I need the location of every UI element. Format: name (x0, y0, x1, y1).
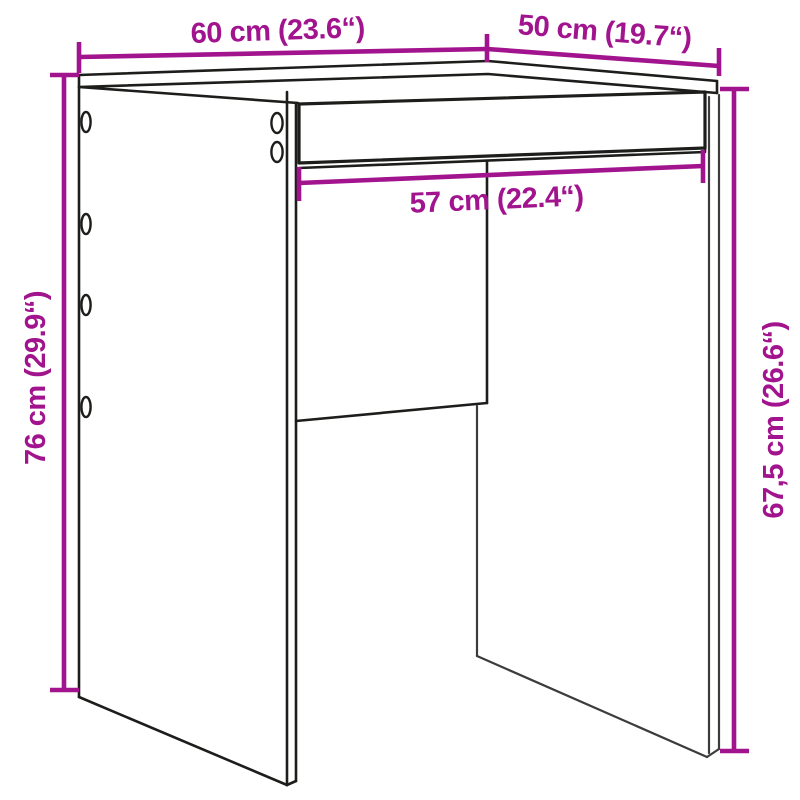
dimension-label-total-height: 76 cm (29.9“) (20, 291, 52, 465)
dimension-top-depth: 50 cm (19.7“) (487, 9, 719, 76)
dimension-line (299, 166, 703, 183)
screw-hole (271, 142, 282, 162)
tabletop-left-end-edge (79, 87, 298, 103)
tabletop (79, 61, 717, 103)
dimension-label-top-width: 60 cm (23.6“) (190, 12, 365, 50)
product-dimension-diagram: 60 cm (23.6“) 50 cm (19.7“) 57 cm (22.4“… (0, 0, 800, 800)
dimension-label-top-depth: 50 cm (19.7“) (517, 9, 693, 55)
dimension-line (79, 49, 487, 57)
left-panel-bottom-thickness-edge (287, 781, 296, 785)
desk-dimension-drawing: 60 cm (23.6“) 50 cm (19.7“) 57 cm (22.4“… (0, 0, 800, 800)
screw-hole (81, 214, 90, 234)
left-side-panel (79, 75, 296, 785)
dimension-annotations: 60 cm (23.6“) 50 cm (19.7“) 57 cm (22.4“… (20, 9, 790, 751)
left-panel-bottom-edge (79, 697, 287, 785)
drawer-outline (299, 92, 705, 163)
dimension-total-height: 76 cm (29.9“) (20, 75, 79, 690)
dimension-label-under-top-height: 67,5 cm (26.6“) (758, 321, 790, 518)
drawer-front (299, 92, 705, 168)
back-panel-bottom-edge (296, 403, 487, 421)
screw-hole (271, 113, 282, 133)
dimension-under-top-height: 67,5 cm (26.6“) (720, 89, 790, 751)
screw-hole (81, 397, 90, 417)
dimension-label-inner-width: 57 cm (22.4“) (409, 180, 584, 220)
tabletop-bottom-edge (79, 74, 717, 93)
screw-hole (81, 295, 90, 315)
screw-hole (81, 112, 90, 132)
right-panel-bottom-edge (477, 656, 707, 757)
